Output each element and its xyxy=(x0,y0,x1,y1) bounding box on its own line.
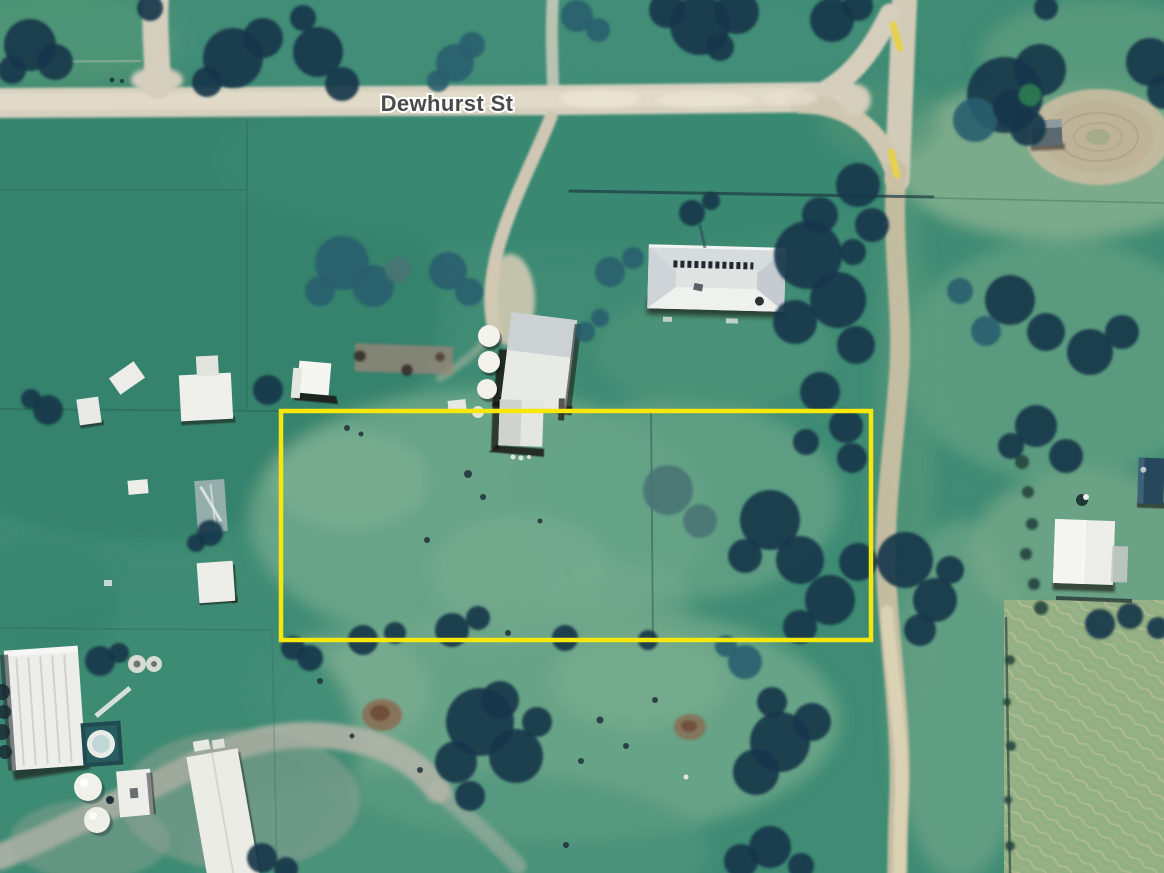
round-yard-arena xyxy=(1026,89,1164,185)
pool xyxy=(81,721,124,768)
satellite-map[interactable]: Dewhurst St xyxy=(0,0,1164,873)
street-label: Dewhurst St xyxy=(381,91,514,116)
blue-roof-building xyxy=(1137,458,1164,509)
hay-shed xyxy=(0,645,91,780)
pump-shed xyxy=(116,768,156,817)
homestead-building xyxy=(647,244,786,325)
satellite-imagery: Dewhurst St xyxy=(0,0,1164,873)
north-road xyxy=(897,0,905,180)
